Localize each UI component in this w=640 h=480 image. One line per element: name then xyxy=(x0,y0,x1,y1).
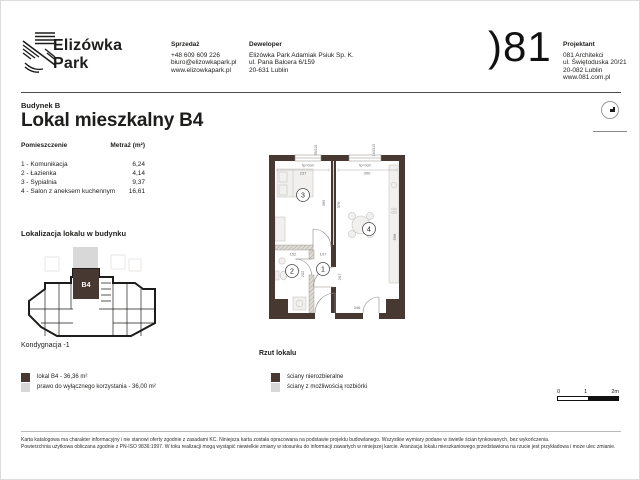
legend-walls: ściany nierozbieralne ściany z możliwośc… xyxy=(271,372,451,392)
building-label: Budynek B xyxy=(21,101,60,110)
room-area: 9,37 xyxy=(132,178,145,187)
dim-wb: 346 xyxy=(354,305,361,310)
wardrobe xyxy=(275,217,285,241)
room-name: 2 - Łazienka xyxy=(21,169,56,178)
designer-address2: 20-082 Lublin xyxy=(563,67,627,75)
legend-item: ściany nierozbieralne xyxy=(271,372,451,382)
scale-1: 1 xyxy=(584,389,587,395)
legend-item: prawo do wyłącznego korzystania - 36,00 … xyxy=(21,382,241,392)
floor-label: Kondygnacja -1 xyxy=(21,342,70,349)
north-arrow-icon xyxy=(599,99,621,121)
designer-contact: Projektant 081 Architekci ul. Świętodusk… xyxy=(563,41,627,82)
developer-contact: Deweloper Elizówka Park Adamiak Psiuk Sp… xyxy=(249,41,354,74)
table-row: 2 - Łazienka 4,14 xyxy=(21,169,145,178)
dim-w4: 300 xyxy=(364,171,371,176)
disclaimer-line2: Powierzchnia użytkowa obliczana zgodnie … xyxy=(21,444,623,451)
plan-label: Rzut lokalu xyxy=(259,350,296,357)
washbasin xyxy=(279,258,285,264)
rooms-table: Pomieszczenie Metraż (m²) 1 - Komunikacj… xyxy=(21,142,145,196)
room-2-number: 2 xyxy=(290,268,294,275)
dim-window-a: 95/215 xyxy=(314,145,318,156)
legend-unit: lokal B4 - 36,36 m² prawo do wyłącznego … xyxy=(21,372,241,392)
exclusive-use-swatch xyxy=(21,383,30,392)
brand-line2: Park xyxy=(53,55,122,73)
developer-address1: ul. Pana Balcera 6/159 xyxy=(249,59,354,67)
dim-w1: 107 xyxy=(320,252,327,257)
dim-sill-a: hp=0cm xyxy=(302,164,315,168)
sales-label: Sprzedaż xyxy=(171,41,237,49)
elizowka-park-logo-icon xyxy=(21,31,57,73)
room-3-number: 3 xyxy=(301,192,305,199)
kitchen-sink xyxy=(391,182,396,187)
designer-address1: ul. Świętoduska 20/21 xyxy=(563,59,627,67)
sales-phone: +48 609 609 226 xyxy=(171,52,237,60)
col-area: Metraż (m²) xyxy=(110,142,145,149)
unit-area-swatch xyxy=(21,373,30,382)
dim-sill-b: hp=0cm xyxy=(359,164,372,168)
legend-item: ściany z możliwością rozbiórki xyxy=(271,382,451,392)
dim-w2: 152 xyxy=(290,252,297,257)
sales-website: www.elizowkapark.pl xyxy=(171,67,237,75)
dim-h2: 202 xyxy=(300,270,305,277)
balcony-area xyxy=(73,247,98,269)
compass-divider xyxy=(593,131,627,132)
header-divider xyxy=(21,92,621,93)
room-area: 16,61 xyxy=(129,187,145,196)
dim-w3: 237 xyxy=(300,171,307,176)
081-architekci-logo: )81 xyxy=(488,23,552,71)
designer-label: Projektant xyxy=(563,41,627,49)
sales-contact: Sprzedaż +48 609 609 226 biuro@elizowkap… xyxy=(171,41,237,74)
pier xyxy=(386,299,399,313)
exclusive-use-label: prawo do wyłącznego korzystania - 36,00 … xyxy=(37,384,156,390)
footer-divider xyxy=(21,431,621,432)
developer-name: Elizówka Park Adamiak Psiuk Sp. K. xyxy=(249,52,354,60)
disclaimer-line1: Karta katalogowa ma charakter informacyj… xyxy=(21,437,623,444)
developer-label: Deweloper xyxy=(249,41,354,49)
removable-walls-swatch xyxy=(271,383,280,392)
developer-address2: 20-631 Lublin xyxy=(249,67,354,75)
brand-name: Elizówka Park xyxy=(53,37,122,73)
dim-h3: 365 xyxy=(321,199,326,206)
scale-2m: 2m xyxy=(611,389,619,395)
table-row: 1 - Komunikacja 6,24 xyxy=(21,160,145,169)
table-row: 4 - Salon z aneksem kuchennym 16,61 xyxy=(21,187,145,196)
brand-line1: Elizówka xyxy=(53,37,122,55)
scale-bar-graphic xyxy=(557,396,619,401)
room-name: 4 - Salon z aneksem kuchennym xyxy=(21,187,115,196)
dim-h1: 207 xyxy=(337,273,342,280)
legend-item: lokal B4 - 36,36 m² xyxy=(21,372,241,382)
rooms-table-header: Pomieszczenie Metraż (m²) xyxy=(21,142,145,149)
removable-walls-label: ściany z możliwością rozbiórki xyxy=(287,384,367,390)
dim-window-b: 140/215 xyxy=(372,144,376,157)
solid-walls-label: ściany nierozbieralne xyxy=(287,374,343,380)
building-location-plan: B4 xyxy=(15,243,171,343)
footer-disclaimer: Karta katalogowa ma charakter informacyj… xyxy=(21,437,623,451)
page-title: Lokal mieszkalny B4 xyxy=(21,110,203,132)
scale-bar: 0 1 2m xyxy=(557,389,619,401)
doors xyxy=(296,229,380,313)
sales-email: biuro@elizowkapark.pl xyxy=(171,59,237,67)
dimension-labels: 95/215 140/215 hp=0cm hp=0cm 237 300 365… xyxy=(290,144,397,310)
catalog-card: Elizówka Park Sprzedaż +48 609 609 226 b… xyxy=(0,0,640,480)
room-name: 1 - Komunikacja xyxy=(21,160,68,169)
solid-walls-swatch xyxy=(271,373,280,382)
col-room: Pomieszczenie xyxy=(21,142,67,149)
room-1-number: 1 xyxy=(321,266,325,273)
furniture-layer xyxy=(275,165,399,310)
location-section-title: Lokalizacja lokalu w budynku xyxy=(21,229,126,238)
dim-h4: 596 xyxy=(392,233,397,240)
floor-plan: 95/215 140/215 hp=0cm hp=0cm 237 300 365… xyxy=(257,141,417,351)
pier xyxy=(275,299,288,313)
scale-labels: 0 1 2m xyxy=(557,389,619,395)
room-4-number: 4 xyxy=(367,226,371,233)
room-name: 3 - Sypialnia xyxy=(21,178,57,187)
unit-b4-label: B4 xyxy=(82,282,91,289)
designer-website: www.081.com.pl xyxy=(563,74,627,82)
unit-area-label: lokal B4 - 36,36 m² xyxy=(37,374,87,380)
room-area: 6,24 xyxy=(132,160,145,169)
scale-0: 0 xyxy=(557,389,560,395)
room-area: 4,14 xyxy=(132,169,145,178)
dim-h34: 376 xyxy=(336,201,341,208)
table-row: 3 - Sypialnia 9,37 xyxy=(21,178,145,187)
